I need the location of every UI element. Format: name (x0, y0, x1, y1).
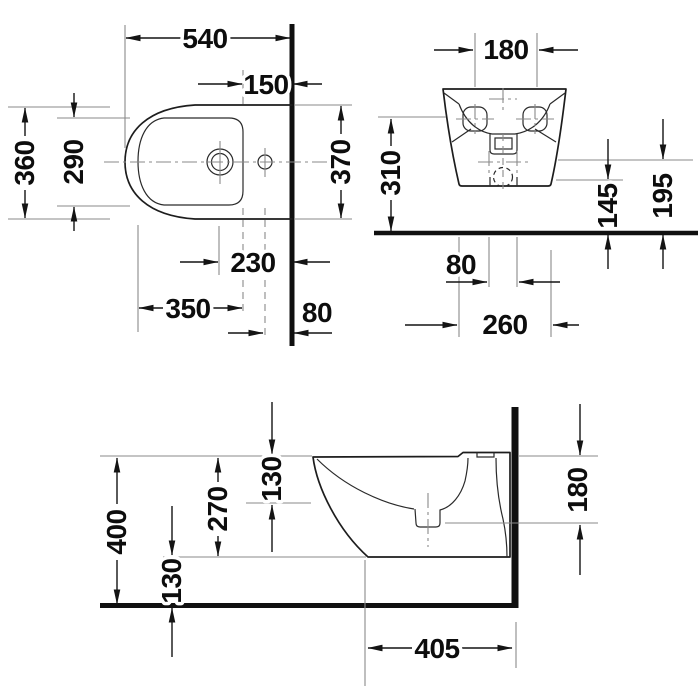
dim-145: 145 (592, 139, 623, 269)
plan-view: 540 150 360 290 370 230 (8, 23, 356, 346)
side-view: 400 130 270 130 180 405 (100, 402, 598, 686)
dim-label-350: 350 (165, 293, 210, 324)
dim-260: 260 (405, 309, 579, 340)
technical-drawing-canvas: 540 150 360 290 370 230 (0, 0, 700, 700)
dim-label-145: 145 (592, 183, 623, 228)
dim-130-lower: 130 (156, 506, 187, 657)
dim-130-upper: 130 (256, 402, 287, 552)
bowl-curve-side (317, 459, 414, 509)
dim-label-230: 230 (230, 247, 275, 278)
dim-label-400: 400 (101, 509, 132, 554)
dim-label-180-front: 180 (483, 34, 528, 65)
dim-310: 310 (375, 119, 406, 231)
dim-label-130-upper: 130 (256, 456, 287, 501)
dim-180-side: 180 (562, 404, 593, 575)
front-view: 180 310 145 195 80 260 (374, 33, 698, 340)
dim-180-front: 180 (434, 34, 578, 65)
dim-270: 270 (202, 458, 233, 556)
dim-195: 195 (647, 119, 678, 269)
dim-405: 405 (368, 633, 512, 664)
technical-drawing-page: 540 150 360 290 370 230 (0, 0, 700, 700)
dim-label-150: 150 (243, 69, 288, 100)
dim-label-80-plan: 80 (302, 297, 332, 328)
dim-label-180-side: 180 (562, 467, 593, 512)
dim-290: 290 (58, 93, 89, 231)
dim-label-80-front: 80 (446, 249, 476, 280)
rim-diagonal-left (444, 93, 459, 104)
rim-diagonal-right (550, 93, 565, 104)
dim-label-540: 540 (182, 23, 227, 54)
dim-label-260: 260 (482, 309, 527, 340)
dim-label-370: 370 (325, 139, 356, 184)
dim-label-195: 195 (647, 173, 678, 218)
dim-80-front: 80 (446, 249, 560, 282)
dim-350: 350 (139, 293, 242, 324)
bidet-outline-side (313, 453, 510, 558)
dim-label-130-lower: 130 (156, 558, 187, 603)
dim-370: 370 (325, 106, 356, 218)
dim-label-270: 270 (202, 486, 233, 531)
dim-label-360: 360 (9, 140, 40, 185)
dim-360: 360 (9, 108, 40, 218)
dim-400: 400 (101, 458, 132, 604)
dim-label-405: 405 (414, 633, 459, 664)
dim-label-290: 290 (58, 139, 89, 184)
dim-540: 540 (126, 23, 290, 54)
back-interior-side (496, 458, 507, 557)
siphon-curve-side (440, 458, 468, 510)
dim-230: 230 (180, 247, 330, 278)
dim-80-plan: 80 (228, 297, 332, 333)
dim-label-310: 310 (375, 150, 406, 195)
dim-150: 150 (198, 69, 322, 100)
